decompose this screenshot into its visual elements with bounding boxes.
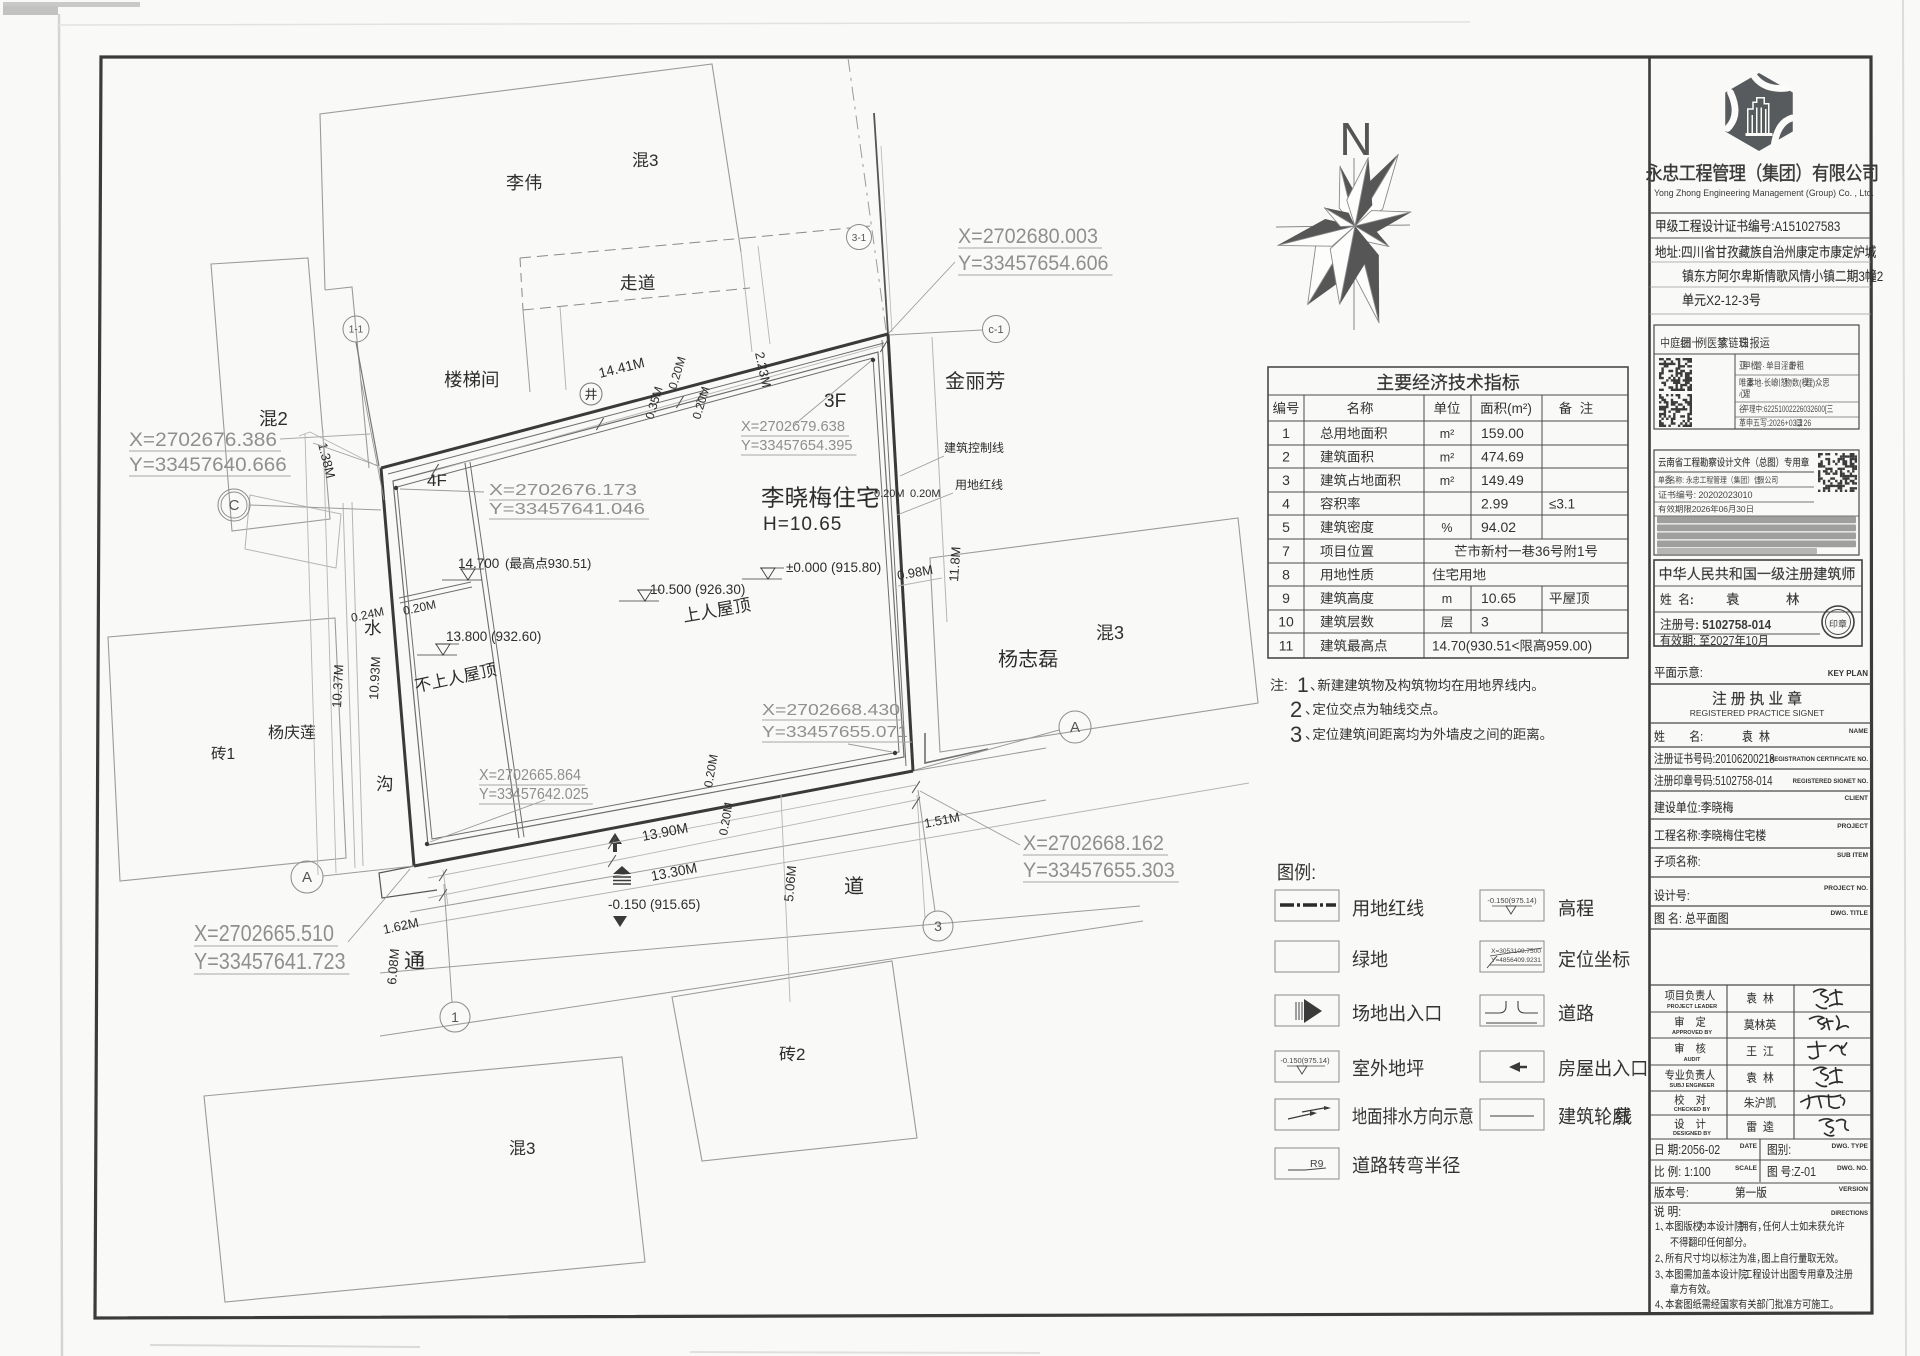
svg-text:X2-12-3: X2-12-3 <box>1706 292 1749 308</box>
svg-text:。: 。 <box>1707 1284 1716 1296</box>
svg-text:X=2702679.638: X=2702679.638 <box>741 418 845 435</box>
svg-text:2、: 2、 <box>1655 1253 1669 1265</box>
svg-text::: : <box>1698 854 1701 869</box>
svg-text:。: 。 <box>1531 678 1544 693</box>
svg-text::: : <box>1698 828 1701 843</box>
svg-text:H=10.65: H=10.65 <box>763 514 842 535</box>
svg-text:SCALE: SCALE <box>1735 1165 1758 1172</box>
svg-text:APPROVED BY: APPROVED BY <box>1672 1030 1712 1036</box>
svg-text:: 1:100: : 1:100 <box>1678 1165 1710 1179</box>
svg-text:2.99: 2.99 <box>1481 496 1508 512</box>
svg-text::: : <box>1700 665 1703 680</box>
svg-text:Y=33457641.723: Y=33457641.723 <box>194 948 346 974</box>
svg-text::A151027583: :A151027583 <box>1771 218 1840 234</box>
svg-text::Z-01: :Z-01 <box>1791 1165 1816 1179</box>
svg-text::: : <box>1678 1205 1681 1219</box>
svg-text:3: 3 <box>1282 472 1290 488</box>
svg-text:9: 9 <box>1282 590 1290 606</box>
svg-text:: 20202023010: : 20202023010 <box>1694 490 1753 500</box>
svg-text:。: 。 <box>1743 1237 1752 1249</box>
svg-text:: 5102758-014: : 5102758-014 <box>1695 617 1771 632</box>
svg-text:心: 心 <box>1739 388 1747 399</box>
svg-text:3: 3 <box>1290 722 1302 747</box>
svg-text:Y=33457655.071: Y=33457655.071 <box>762 724 908 741</box>
svg-text:Y=33457655.303: Y=33457655.303 <box>1023 858 1175 882</box>
svg-text:930.51): 930.51) <box>548 556 591 571</box>
svg-text:。: 。 <box>1433 702 1446 717</box>
svg-text:3: 3 <box>1114 623 1124 643</box>
svg-text:码:20106200218: 码:20106200218 <box>1703 752 1775 766</box>
svg-text:c-1: c-1 <box>988 324 1003 336</box>
svg-text:松: 松 <box>1751 360 1759 371</box>
svg-text:NAME: NAME <box>1849 728 1869 735</box>
svg-text:474.69: 474.69 <box>1481 449 1524 465</box>
svg-text:AUDIT: AUDIT <box>1684 1057 1701 1063</box>
svg-text:SUBJ ENGINEER: SUBJ ENGINEER <box>1670 1083 1715 1089</box>
svg-text:·: · <box>1762 360 1764 371</box>
svg-text:3: 3 <box>1858 268 1865 284</box>
svg-text:1-1: 1-1 <box>349 325 364 336</box>
svg-text:2026: 2026 <box>1692 504 1711 514</box>
svg-text:11: 11 <box>1279 638 1294 654</box>
svg-text::: : <box>1690 592 1694 607</box>
svg-text::: : <box>1687 888 1690 903</box>
svg-text:KEY PLAN: KEY PLAN <box>1828 669 1869 678</box>
svg-text:REGISTERED PRACTICE SIGNET: REGISTERED PRACTICE SIGNET <box>1690 708 1825 718</box>
svg-text:别:: 别: <box>1778 1143 1792 1157</box>
svg-text:院: 院 <box>1738 1267 1747 1281</box>
svg-text:X=2702680.003: X=2702680.003 <box>958 225 1098 248</box>
svg-text::: : <box>1679 911 1682 926</box>
svg-text:PROJECT LEADER: PROJECT LEADER <box>1667 1004 1717 1010</box>
svg-text:5.06M: 5.06M <box>781 865 799 902</box>
svg-text:3F: 3F <box>824 391 846 412</box>
svg-text:2: 2 <box>278 408 288 429</box>
svg-text:10.65: 10.65 <box>1481 590 1516 606</box>
svg-text:权: 权 <box>1693 1219 1702 1233</box>
svg-text:DWG. NO.: DWG. NO. <box>1837 1165 1868 1172</box>
svg-text:革申五写:2026+03ま26: 革申五写:2026+03ま26 <box>1739 417 1812 428</box>
svg-text:Y=33457654.395: Y=33457654.395 <box>741 437 853 454</box>
svg-text:149.49: 149.49 <box>1481 472 1524 488</box>
svg-text:10.500 (926.30): 10.500 (926.30) <box>650 582 745 597</box>
svg-text:94.02: 94.02 <box>1481 519 1516 535</box>
svg-text::: : <box>1686 1186 1689 1200</box>
svg-text:·长岭: ·长岭 <box>1761 377 1778 388</box>
svg-text:1: 1 <box>451 1009 459 1025</box>
svg-text:N: N <box>1339 113 1372 165</box>
svg-text:唯蛋: 唯蛋 <box>1739 377 1754 388</box>
svg-text:X=2702676.173: X=2702676.173 <box>489 482 637 499</box>
svg-text:%: % <box>1441 521 1452 535</box>
svg-text:REGISTERED SIGNET NO.: REGISTERED SIGNET NO. <box>1793 779 1869 785</box>
svg-text:10.37M: 10.37M <box>329 664 346 708</box>
svg-text:(m²): (m²) <box>1507 401 1532 416</box>
svg-text:0.20M: 0.20M <box>874 488 905 500</box>
svg-text:)众思: )众思 <box>1813 377 1830 388</box>
svg-text::: : <box>1284 677 1288 693</box>
svg-text:2: 2 <box>1877 268 1884 284</box>
svg-text:粗: 粗 <box>1797 360 1805 371</box>
svg-text:X=2702665.510: X=2702665.510 <box>194 920 334 946</box>
svg-text:。: 。 <box>1835 1253 1844 1265</box>
svg-text:2: 2 <box>1290 697 1302 722</box>
svg-text:Y=4856409.9231: Y=4856409.9231 <box>1491 957 1541 964</box>
svg-text:7: 7 <box>1282 543 1290 559</box>
svg-text:3: 3 <box>1481 614 1489 630</box>
svg-text:1: 1 <box>227 746 236 763</box>
svg-text:3: 3 <box>649 151 658 170</box>
svg-text:959.00): 959.00) <box>1546 639 1592 654</box>
svg-text:Y=33457640.666: Y=33457640.666 <box>129 454 287 476</box>
svg-text:X=2702668.430: X=2702668.430 <box>762 702 900 719</box>
svg-text:1: 1 <box>1297 674 1309 697</box>
svg-text:DWG. TYPE: DWG. TYPE <box>1832 1143 1869 1150</box>
svg-text:VERSION: VERSION <box>1839 1186 1869 1193</box>
svg-text:Y=33457641.046: Y=33457641.046 <box>489 501 645 518</box>
svg-text:PROJECT NO.: PROJECT NO. <box>1824 885 1868 892</box>
svg-text:10: 10 <box>1278 614 1294 630</box>
svg-text:±0.000 (915.80): ±0.000 (915.80) <box>786 560 881 575</box>
svg-text::: : <box>1311 862 1316 883</box>
svg-text:，: ， <box>1756 1253 1765 1265</box>
svg-text:DWG. TITLE: DWG. TITLE <box>1830 910 1868 917</box>
svg-text:Y=33457654.606: Y=33457654.606 <box>958 252 1109 275</box>
svg-text::62251002226032600[三: :62251002226032600[三 <box>1762 404 1833 414</box>
svg-text:13.800 (932.60): 13.800 (932.60) <box>446 629 541 644</box>
svg-text:0.20M: 0.20M <box>910 488 941 500</box>
svg-text:-0.150(975.14): -0.150(975.14) <box>1487 896 1537 905</box>
svg-text:m²: m² <box>1440 427 1455 441</box>
svg-text:36: 36 <box>1535 544 1550 559</box>
svg-text:X=2702668.162: X=2702668.162 <box>1023 831 1164 855</box>
svg-text:-0.150 (915.65): -0.150 (915.65) <box>608 897 700 912</box>
svg-text:4: 4 <box>1282 496 1290 512</box>
svg-text:10.93M: 10.93M <box>366 656 383 700</box>
svg-text:CLIENT: CLIENT <box>1845 795 1869 802</box>
svg-text:10: 10 <box>1746 634 1759 648</box>
svg-text:30: 30 <box>1736 504 1746 514</box>
svg-text:(模: (模 <box>1799 377 1809 388</box>
svg-text:。: 。 <box>1540 727 1553 742</box>
svg-text:2: 2 <box>796 1045 805 1064</box>
svg-text:06: 06 <box>1719 504 1729 514</box>
svg-text:Yong Zhong Engineering Managem: Yong Zhong Engineering Management (Group… <box>1654 188 1874 199</box>
svg-text::: : <box>1682 475 1684 485</box>
svg-text:PROJECT: PROJECT <box>1837 823 1868 830</box>
svg-text:DESIGNED BY: DESIGNED BY <box>1673 1131 1711 1137</box>
svg-text:2027: 2027 <box>1710 634 1734 648</box>
svg-text:CHECKED BY: CHECKED BY <box>1674 1107 1711 1113</box>
svg-text:6.08M: 6.08M <box>384 948 402 985</box>
svg-text:-0.150(975.14): -0.150(975.14) <box>1280 1056 1330 1065</box>
svg-text::: : <box>1698 800 1701 815</box>
svg-text:REGISTRATION CERTIFICATE NO.: REGISTRATION CERTIFICATE NO. <box>1770 757 1868 763</box>
svg-text:，: ， <box>1758 1221 1767 1233</box>
svg-text:m: m <box>1442 592 1452 606</box>
svg-text:。: 。 <box>1829 1299 1838 1311</box>
svg-text:2: 2 <box>1282 449 1290 465</box>
svg-text:Y=33457642.025: Y=33457642.025 <box>479 786 589 803</box>
svg-text:DIRECTIONS: DIRECTIONS <box>1831 1211 1868 1217</box>
svg-text::: : <box>1693 634 1696 648</box>
svg-text:A: A <box>302 869 312 886</box>
svg-text:159.00: 159.00 <box>1481 425 1524 441</box>
svg-text:5: 5 <box>1282 519 1290 535</box>
svg-text:X=2702665.864: X=2702665.864 <box>479 767 581 784</box>
svg-text:X=2702676.386: X=2702676.386 <box>129 429 277 451</box>
svg-text:1: 1 <box>1577 544 1585 559</box>
svg-text:码:5102758-014: 码:5102758-014 <box>1703 774 1773 788</box>
svg-text::2056-02: :2056-02 <box>1678 1143 1720 1157</box>
svg-text:C: C <box>229 497 240 514</box>
svg-text:报运: 报运 <box>1750 335 1770 350</box>
svg-text:3-1: 3-1 <box>852 233 867 244</box>
svg-text::: : <box>1678 244 1681 260</box>
svg-text:4F: 4F <box>427 471 447 490</box>
svg-text::: : <box>1700 729 1703 744</box>
svg-text:1: 1 <box>1282 425 1290 441</box>
svg-text:DATE: DATE <box>1740 1143 1758 1150</box>
svg-text:3: 3 <box>934 918 942 934</box>
svg-text:14.70(930.51<: 14.70(930.51< <box>1432 639 1520 654</box>
svg-text:m²: m² <box>1440 474 1455 488</box>
svg-text:SUB ITEM: SUB ITEM <box>1837 852 1868 859</box>
svg-text:A: A <box>1070 719 1080 736</box>
svg-text:≤3.1: ≤3.1 <box>1549 497 1575 512</box>
svg-text:3: 3 <box>526 1139 535 1158</box>
svg-text:11.8M: 11.8M <box>946 546 963 582</box>
svg-text:m²: m² <box>1440 451 1455 465</box>
svg-text:8: 8 <box>1282 567 1290 583</box>
